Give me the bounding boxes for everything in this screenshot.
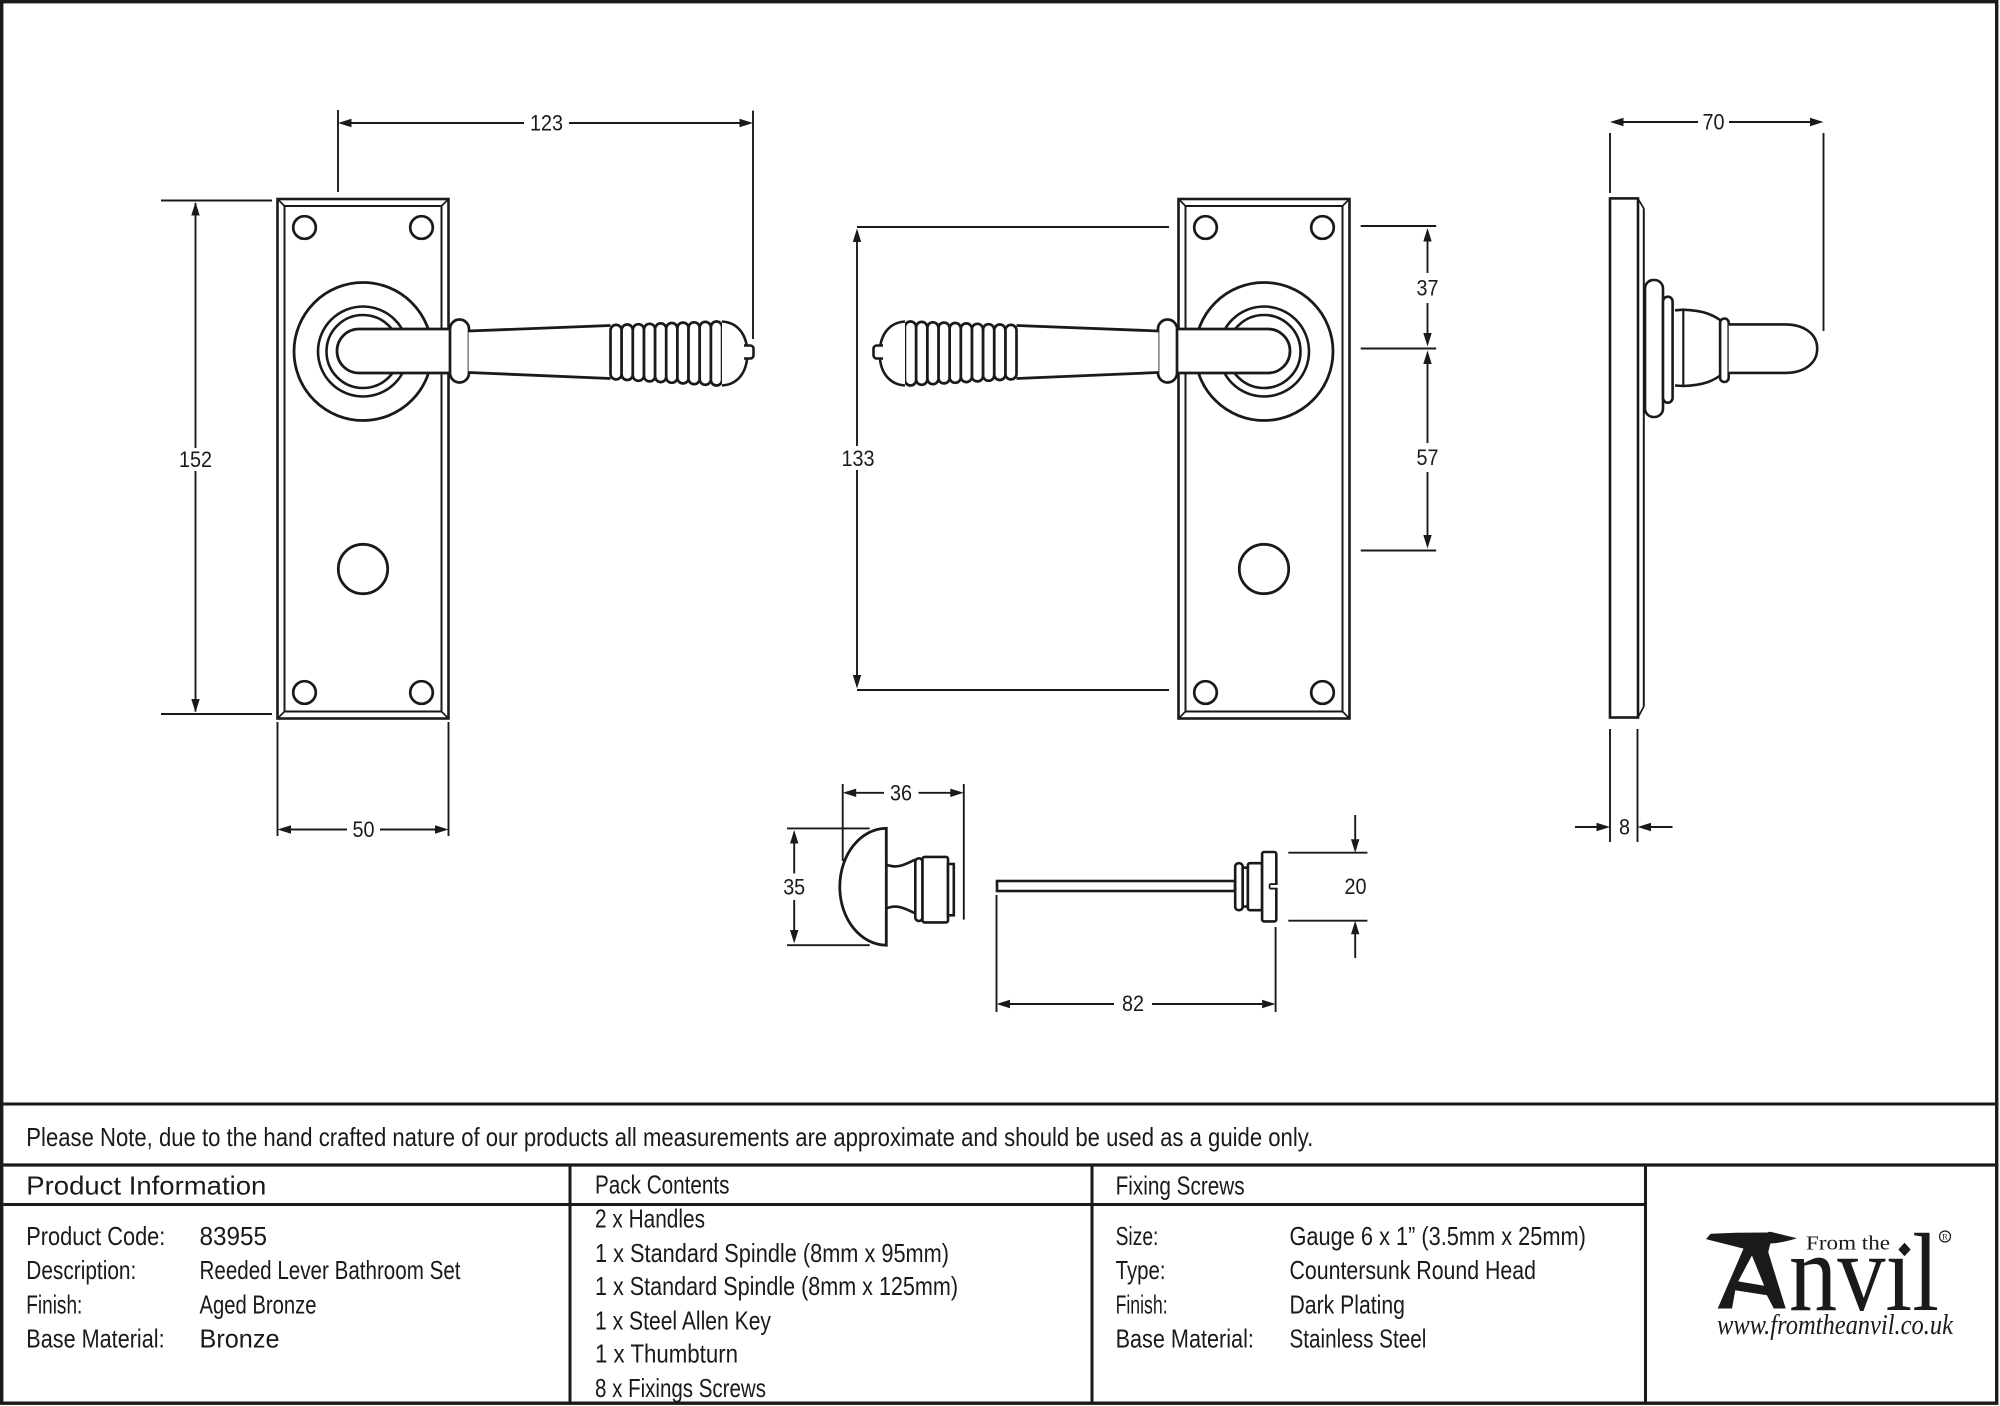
svg-text:Dark Plating: Dark Plating [1290,1289,1405,1319]
svg-text:Reeded Lever Bathroom Set: Reeded Lever Bathroom Set [200,1255,462,1285]
svg-text:8 x Fixings Screws: 8 x Fixings Screws [595,1373,766,1403]
svg-text:Finish:: Finish: [26,1289,82,1319]
svg-text:Description:: Description: [26,1255,136,1285]
svg-text:Stainless Steel: Stainless Steel [1290,1324,1427,1354]
svg-text:123: 123 [530,111,563,136]
svg-text:133: 133 [842,446,875,471]
svg-text:20: 20 [1345,874,1367,899]
svg-text:8: 8 [1619,815,1630,840]
svg-text:Gauge 6 x 1” (3.5mm x 25mm): Gauge 6 x 1” (3.5mm x 25mm) [1290,1221,1586,1251]
svg-text:2 x Handles: 2 x Handles [595,1204,705,1234]
svg-text:Size:: Size: [1116,1221,1159,1251]
svg-text:Base Material:: Base Material: [26,1324,164,1354]
svg-text:Product Information: Product Information [26,1171,266,1201]
svg-text:Aged Bronze: Aged Bronze [200,1289,317,1319]
svg-text:70: 70 [1703,110,1725,135]
svg-text:37: 37 [1417,276,1439,301]
svg-text:36: 36 [890,780,912,805]
svg-text:83955: 83955 [200,1221,268,1251]
svg-text:Pack Contents: Pack Contents [595,1170,730,1200]
svg-text:Base Material:: Base Material: [1116,1324,1254,1354]
svg-text:57: 57 [1417,445,1439,470]
svg-text:R: R [1942,1232,1948,1242]
svg-text:50: 50 [353,817,375,842]
svg-text:1 x Standard Spindle (8mm x 12: 1 x Standard Spindle (8mm x 125mm) [595,1271,958,1301]
svg-text:Product Code:: Product Code: [26,1221,165,1251]
svg-text:152: 152 [179,447,212,472]
svg-text:Please Note, due to the hand c: Please Note, due to the hand crafted nat… [26,1122,1313,1152]
svg-text:Fixing Screws: Fixing Screws [1116,1171,1245,1201]
svg-text:Countersunk Round Head: Countersunk Round Head [1290,1255,1537,1285]
svg-text:1 x Steel Allen Key: 1 x Steel Allen Key [595,1306,771,1336]
svg-text:Bronze: Bronze [200,1324,280,1354]
svg-text:1 x Thumbturn: 1 x Thumbturn [595,1339,738,1369]
svg-text:www.fromtheanvil.co.uk: www.fromtheanvil.co.uk [1717,1310,1953,1341]
svg-text:Type:: Type: [1116,1255,1166,1285]
svg-text:82: 82 [1122,991,1144,1016]
svg-text:1 x Standard Spindle (8mm x 95: 1 x Standard Spindle (8mm x 95mm) [595,1238,949,1268]
svg-text:35: 35 [783,874,805,899]
svg-text:Finish:: Finish: [1116,1289,1168,1319]
